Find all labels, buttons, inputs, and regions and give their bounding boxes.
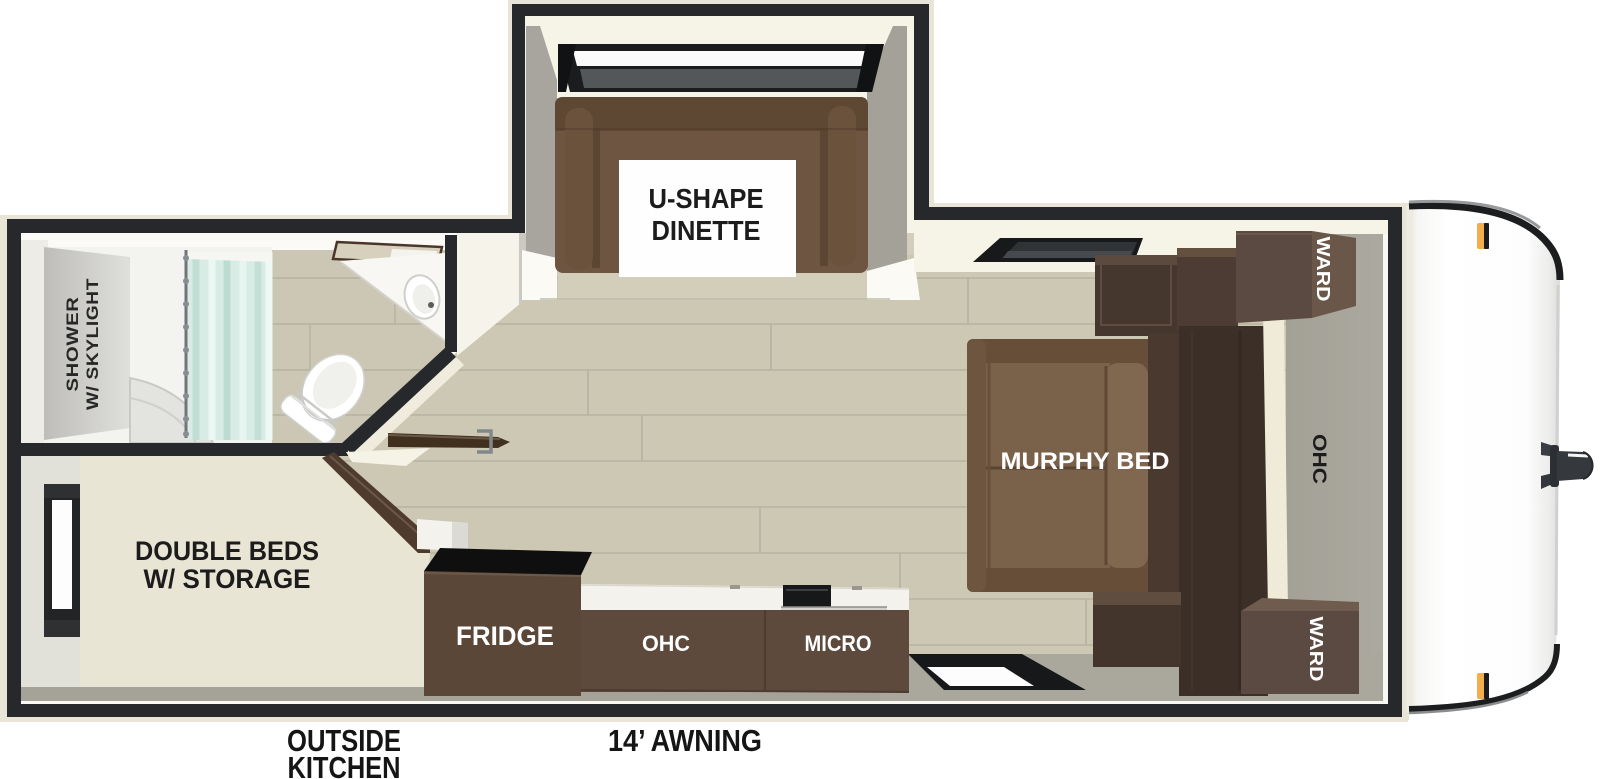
svg-text:U-SHAPE: U-SHAPE — [649, 183, 764, 214]
svg-text:KITCHEN: KITCHEN — [288, 750, 401, 779]
svg-text:WARD: WARD — [1306, 617, 1326, 682]
svg-text:MICRO: MICRO — [805, 631, 872, 656]
svg-text:DOUBLE BEDS: DOUBLE BEDS — [135, 536, 319, 566]
svg-text:FRIDGE: FRIDGE — [456, 621, 554, 651]
svg-text:WARD: WARD — [1313, 237, 1333, 302]
svg-text:MURPHY BED: MURPHY BED — [1001, 448, 1170, 475]
svg-text:OHC: OHC — [642, 631, 690, 656]
svg-text:14’ AWNING: 14’ AWNING — [608, 723, 762, 758]
svg-text:W/ STORAGE: W/ STORAGE — [144, 564, 311, 594]
svg-text:SHOWERW/ SKYLIGHT: SHOWERW/ SKYLIGHT — [63, 278, 102, 410]
svg-text:DINETTE: DINETTE — [652, 215, 761, 246]
svg-text:OHC: OHC — [1308, 434, 1329, 484]
